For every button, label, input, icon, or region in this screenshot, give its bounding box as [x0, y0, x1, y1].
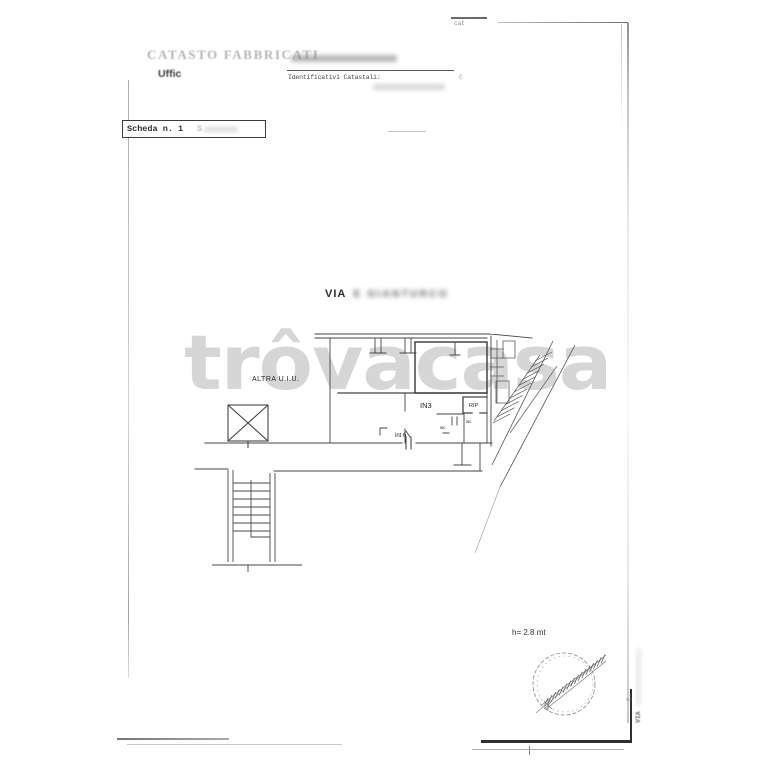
height-note: h= 2.8 mt [512, 628, 546, 637]
scheda-label: Scheda n. 1 [127, 124, 183, 134]
window-mark [370, 338, 386, 353]
side-note-c: C. [626, 693, 633, 701]
scheda-box: Scheda n. 1 S [122, 120, 266, 138]
diagonal-boundary [475, 341, 575, 553]
top-corner-rule [451, 17, 487, 19]
page-left-border [128, 80, 129, 678]
identifiers-label: Identificativi Catastali: [288, 74, 381, 81]
stamp-icon [518, 643, 614, 729]
page-right-border [627, 23, 629, 723]
shaft-crossed-box [228, 405, 268, 448]
room-outline [415, 342, 487, 393]
street-label: VIA E GIANTURCO [325, 288, 449, 300]
identifiers-value: C [459, 74, 463, 81]
window-mark [450, 342, 460, 355]
label-wc-left: wc [440, 425, 446, 430]
inner-frame-bottom [481, 740, 632, 743]
identifiers-rule [287, 70, 454, 71]
street-prefix: VIA [325, 288, 346, 300]
plan-walls [195, 334, 532, 471]
floor-plan: ALTRA U.I.U. IN3 RIP int 6 wc wc [190, 325, 600, 580]
window-mark [400, 338, 416, 353]
upper-staircase-hatch [493, 352, 557, 433]
page-bottom-rule [117, 738, 229, 740]
corner-note: cat [454, 20, 465, 27]
inner-frame-tick [529, 746, 530, 755]
label-in3: IN3 [420, 401, 432, 410]
redacted-identifiers-bar [373, 84, 445, 90]
street-name-redacted: E GIANTURCO [353, 288, 449, 300]
label-other-unit: ALTRA U.I.U. [252, 376, 300, 383]
radiator-combs [490, 340, 515, 403]
label-int6: int 6 [395, 433, 407, 439]
office-label: Uffic [158, 68, 181, 80]
page-right-border-inner [621, 24, 622, 134]
redacted-scheda-bar [204, 127, 238, 132]
page-bottom-rule-faint [127, 744, 342, 745]
scanned-cadastral-sheet: cat CATASTO FABBRICATI Uffic Identificat… [0, 0, 768, 768]
redacted-address-bar [291, 55, 397, 62]
label-wc-right: wc [466, 419, 472, 424]
side-note-via: VIA [635, 603, 642, 723]
side-note-via-text: VIA [635, 711, 642, 723]
page-left-border-inner [132, 84, 133, 674]
label-rip: RIP [469, 403, 479, 409]
page-top-border [498, 22, 628, 23]
faint-field-rule [388, 131, 426, 132]
scheda-secondary: S [197, 125, 202, 134]
lower-staircase [212, 470, 302, 572]
inner-frame-bottom-faint [472, 749, 624, 750]
redacted-side-bar [637, 648, 641, 706]
